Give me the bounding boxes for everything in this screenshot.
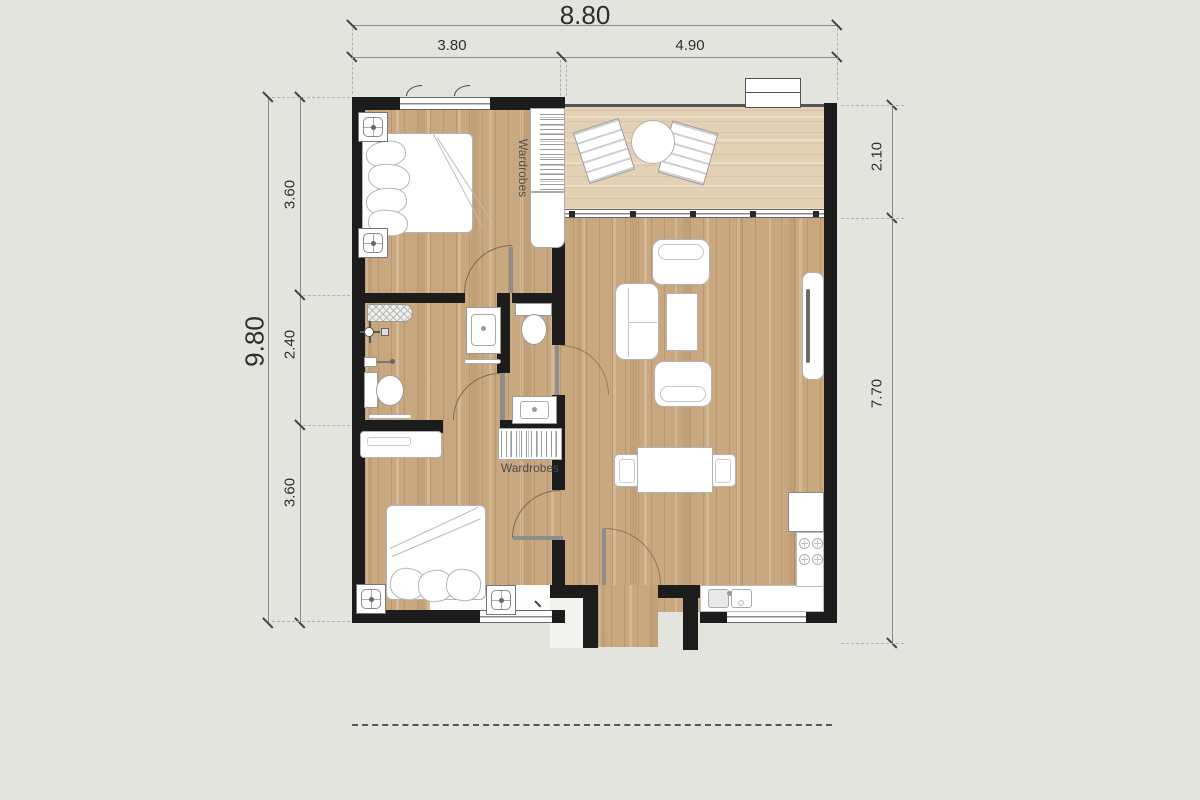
- sliding-door-balcony: [565, 209, 824, 218]
- vanity-sink-small: [512, 396, 557, 424]
- sink-faucet: [481, 326, 486, 331]
- wall-vestibule-left-h: [550, 585, 598, 598]
- wall-top-bedroom1-a: [352, 97, 400, 110]
- dim-top-seg-1: 3.80: [412, 37, 492, 54]
- armchair-top: [652, 239, 710, 285]
- door-leaf-bathroom-left: [500, 373, 505, 420]
- wardrobe-hangers: [501, 431, 559, 457]
- shower-control: [381, 328, 389, 336]
- dresser-bedroom2: [360, 431, 442, 458]
- kitchen-faucet: [727, 591, 732, 596]
- dim-right-seg-2: 7.70: [869, 354, 886, 434]
- wall-bedroom1-bottom-b: [512, 293, 565, 303]
- wardrobes-label-bedroom2: Wardrobes: [493, 461, 567, 475]
- sliding-door-stop: [569, 211, 575, 217]
- extension-line: [352, 28, 353, 94]
- casement-arc: [454, 85, 470, 96]
- nightstand-lamp: [356, 584, 386, 614]
- dim-top-overall: 8.80: [540, 0, 630, 31]
- dim-line-right: [892, 105, 893, 643]
- balcony-round-table: [631, 120, 675, 164]
- kitchen-sink-basin-left: [708, 589, 729, 608]
- chair-seat: [619, 459, 635, 483]
- sofa-cushion-line: [629, 322, 657, 323]
- dim-left-overall: 9.80: [240, 297, 271, 387]
- dining-chair-right: [710, 454, 736, 487]
- extension-line: [303, 295, 350, 296]
- stove-burner: [799, 554, 810, 565]
- wardrobes-label-bedroom1: Wardrobes: [516, 123, 530, 213]
- extension-line: [272, 621, 350, 622]
- nightstand-lamp: [486, 585, 516, 615]
- toilet-bowl-small: [521, 314, 547, 345]
- wardrobe-hangers: [540, 110, 564, 190]
- extension-line: [272, 97, 350, 98]
- lamp-icon: [361, 589, 381, 609]
- dim-top-seg-2: 4.90: [650, 37, 730, 54]
- stove-burner: [799, 538, 810, 549]
- casement-arc: [406, 85, 422, 96]
- nightstand-lamp: [358, 228, 388, 258]
- toilet-cistern-left: [364, 357, 377, 367]
- sliding-door-stop: [813, 211, 819, 217]
- wall-vestibule-left-v: [583, 598, 598, 648]
- towel-rail: [464, 359, 501, 364]
- toilet-bowl-left: [376, 375, 404, 406]
- armchair-bottom: [654, 361, 712, 407]
- dim-line-top-segments: [352, 57, 837, 58]
- armchair-cushion: [658, 244, 704, 260]
- nightstand-lamp: [358, 112, 388, 142]
- ac-unit-divider: [746, 92, 800, 93]
- lamp-icon: [363, 233, 383, 253]
- floor-entry-pocket: [550, 598, 583, 648]
- wall-vestibule-right-v: [683, 598, 698, 650]
- extension-line: [841, 218, 904, 219]
- wardrobe-bedroom1-lower: [530, 192, 565, 248]
- wall-vestibule-right-h: [658, 585, 705, 598]
- tv-screen: [806, 289, 810, 363]
- extension-line: [837, 28, 838, 100]
- door-leaf-entry: [602, 528, 606, 585]
- dim-right-seg-1: 2.10: [869, 117, 886, 197]
- shower-screen-dot: [390, 359, 395, 364]
- dining-table: [637, 447, 713, 493]
- dresser-detail: [367, 437, 411, 446]
- stove-burner: [812, 538, 823, 549]
- sink-faucet: [532, 407, 537, 412]
- shower-knob: [364, 327, 374, 337]
- sliding-door-stop: [690, 211, 696, 217]
- vanity-sink-hall: [466, 307, 501, 354]
- door-leaf-bathroom-small: [555, 345, 559, 395]
- door-leaf-bedroom1: [509, 247, 513, 293]
- refrigerator: [788, 492, 824, 532]
- extension-line: [303, 425, 350, 426]
- floor-entry-path: [598, 585, 658, 647]
- extension-line: [560, 60, 561, 96]
- floor-plan-canvas: 8.80 3.80 4.90 9.80 3.60 2.40 3.60 2.10 …: [0, 0, 1200, 800]
- extension-line: [841, 105, 904, 106]
- extension-line: [566, 60, 567, 96]
- wall-right: [824, 103, 837, 623]
- setback-dashed-line: [352, 724, 832, 726]
- sliding-door-stop: [630, 211, 636, 217]
- towel-rail: [368, 414, 412, 419]
- lamp-icon: [363, 117, 383, 137]
- wall-bedroom1-bottom-a: [352, 293, 465, 303]
- lamp-icon: [491, 590, 511, 610]
- sliding-door-stop: [750, 211, 756, 217]
- sofa: [615, 283, 659, 360]
- coffee-table: [666, 293, 698, 351]
- dim-line-left-segments: [300, 97, 301, 623]
- chair-seat: [715, 459, 731, 483]
- dim-left-seg-3: 3.60: [282, 453, 299, 533]
- door-leaf-bedroom2: [513, 536, 563, 540]
- armchair-cushion: [660, 386, 706, 402]
- stove-burner: [812, 554, 823, 565]
- ac-unit: [745, 78, 801, 108]
- dim-left-seg-2: 2.40: [282, 305, 299, 385]
- kitchen-drain: [738, 600, 744, 606]
- extension-line: [841, 643, 904, 644]
- dim-left-seg-1: 3.60: [282, 155, 299, 235]
- window-bedroom1-top: [400, 97, 490, 110]
- wall-bottom-bedroom2-b: [552, 610, 565, 623]
- bath-mat: [367, 304, 413, 322]
